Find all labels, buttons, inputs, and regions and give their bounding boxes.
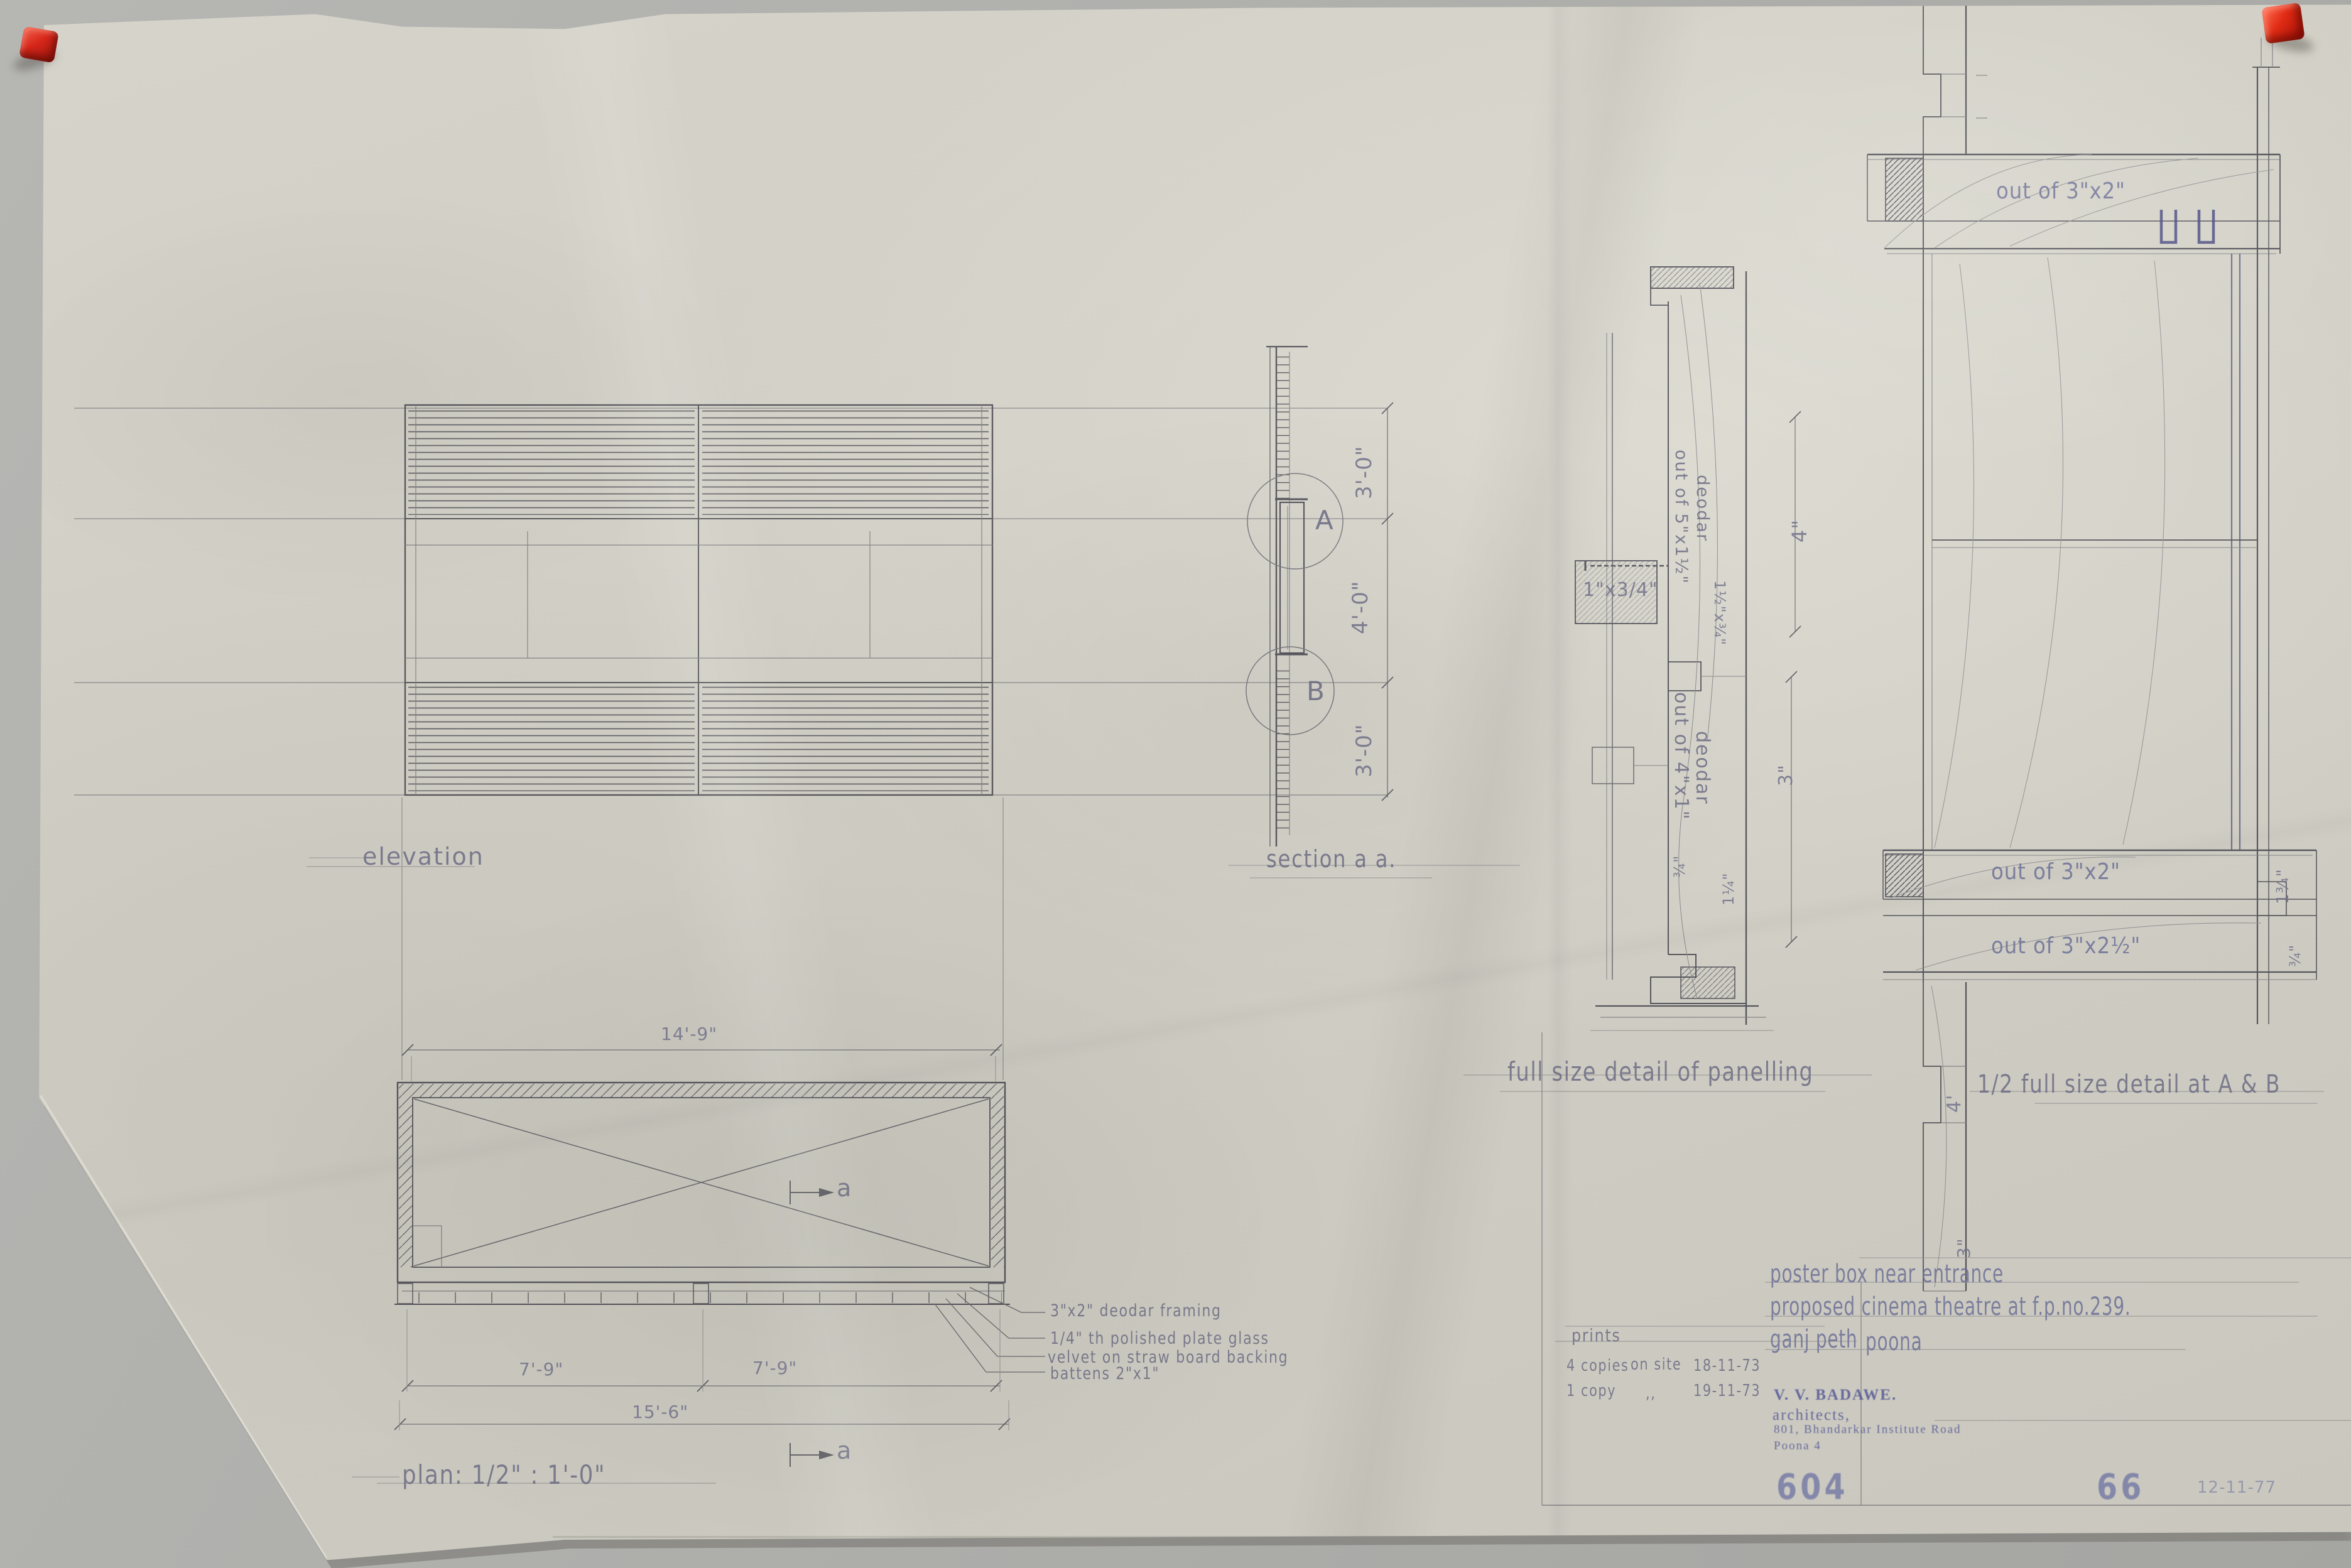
plan-section-marker-bottom: a bbox=[837, 1437, 852, 1464]
architect-stamp-address: 801, Bhandarkar Institute Road bbox=[1774, 1423, 1962, 1437]
title-location-2: poona bbox=[1865, 1327, 1922, 1356]
section-dim-bottom: 3'-0" bbox=[1352, 723, 1377, 777]
plan-dim-half-left: 7'-9" bbox=[519, 1359, 563, 1380]
red-pushpin-left bbox=[16, 26, 73, 77]
sheet-number: 66 bbox=[2097, 1467, 2144, 1508]
plan-section-marker-top: a bbox=[837, 1174, 852, 1202]
plan-label: plan: 1/2" : 1'-0" bbox=[402, 1459, 605, 1490]
plan-drawing bbox=[394, 1044, 1045, 1467]
elevation-drawing bbox=[405, 405, 992, 795]
plan-note-framing: 3"x2" deodar framing bbox=[1050, 1301, 1222, 1321]
panelling-dim-right-top: 4" bbox=[1788, 519, 1811, 543]
half-detail-dim-right-2: ¾" bbox=[2286, 944, 2304, 967]
title-location-1: ganj peth bbox=[1770, 1325, 1857, 1354]
title-line-2: proposed cinema theatre at f.p.no.239. bbox=[1770, 1292, 2131, 1321]
plan-note-battens: battens 2"x1" bbox=[1050, 1364, 1159, 1383]
detail-circle-b-letter: B bbox=[1306, 676, 1326, 706]
panelling-dim-foot-b: 1¼" bbox=[1720, 872, 1737, 906]
red-pushpin-right bbox=[2257, 1, 2320, 58]
plan-note-glass: 1/4" th polished plate glass bbox=[1050, 1329, 1269, 1348]
prints-row1-date: 18-11-73 bbox=[1693, 1356, 1761, 1375]
panelling-bottom-member-note: out of 4"x1" bbox=[1670, 692, 1692, 821]
prints-title: prints bbox=[1572, 1325, 1621, 1346]
architect-stamp-city: Poona 4 bbox=[1774, 1439, 1822, 1453]
half-detail-label: 1/2 full size detail at A & B bbox=[1977, 1070, 2281, 1099]
elevation-label: elevation bbox=[362, 843, 484, 870]
prints-row1-dest: on site bbox=[1631, 1355, 1681, 1374]
detail-circle-a-letter: A bbox=[1315, 505, 1335, 536]
architect-stamp-role: architects, bbox=[1773, 1407, 1850, 1424]
half-detail-bottom-member-note-2: out of 3"x2½" bbox=[1991, 933, 2141, 959]
date-note: 12-11-77 bbox=[2197, 1478, 2276, 1497]
panelling-detail-label: full size detail of panelling bbox=[1507, 1056, 1813, 1087]
prints-row2-qty: 1 copy bbox=[1566, 1381, 1616, 1400]
half-detail-dim-bottom: 3" bbox=[1953, 1238, 1974, 1258]
panelling-top-member-note: out of 5"x1½" bbox=[1671, 450, 1691, 585]
panelling-block-label: 1"x3/4" bbox=[1583, 579, 1658, 601]
plan-dim-width-top: 14'-9" bbox=[661, 1024, 717, 1044]
half-detail-dim-left: 4' bbox=[1943, 1095, 1965, 1113]
panelling-dim-foot-a: ¾" bbox=[1671, 855, 1688, 878]
pushpin-head bbox=[2261, 3, 2305, 44]
section-dim-mid: 4'-0" bbox=[1348, 580, 1373, 634]
prints-row2-ditto: ,, bbox=[1646, 1384, 1656, 1403]
plan-dim-total: 15'-6" bbox=[632, 1402, 688, 1422]
photo-of-drawing: elevation section a a. A B 3'-0" 4'-0" 3… bbox=[0, 0, 2351, 1568]
drawing-number: 604 bbox=[1776, 1467, 1849, 1508]
half-detail-dim-right-1: 1¾" bbox=[2274, 868, 2293, 904]
plan-dim-half-right: 7'-9" bbox=[752, 1358, 797, 1378]
panelling-detail-drawing bbox=[1575, 267, 1801, 1030]
half-detail-top-member-note: out of 3"x2" bbox=[1996, 178, 2126, 204]
panelling-small-dim: 1½"x¾" bbox=[1711, 580, 1729, 646]
title-line-1: poster box near entrance bbox=[1770, 1260, 2004, 1289]
section-label: section a a. bbox=[1266, 845, 1396, 873]
section-dim-top: 3'-0" bbox=[1352, 445, 1377, 499]
prints-row2-date: 19-11-73 bbox=[1693, 1381, 1761, 1400]
tracing-paper-sheet: elevation section a a. A B 3'-0" 4'-0" 3… bbox=[0, 0, 2351, 1568]
prints-row1-qty: 4 copies bbox=[1566, 1356, 1629, 1375]
panelling-top-member-note-2: deodar bbox=[1693, 475, 1712, 542]
panelling-dim-right-bottom: 3" bbox=[1775, 764, 1797, 786]
half-detail-bottom-member-note-1: out of 3"x2" bbox=[1991, 859, 2120, 885]
pushpin-head bbox=[19, 26, 59, 63]
panelling-bottom-member-note-2: deodar bbox=[1691, 731, 1713, 805]
architect-stamp-name: V. V. BADAWE. bbox=[1774, 1387, 1897, 1404]
